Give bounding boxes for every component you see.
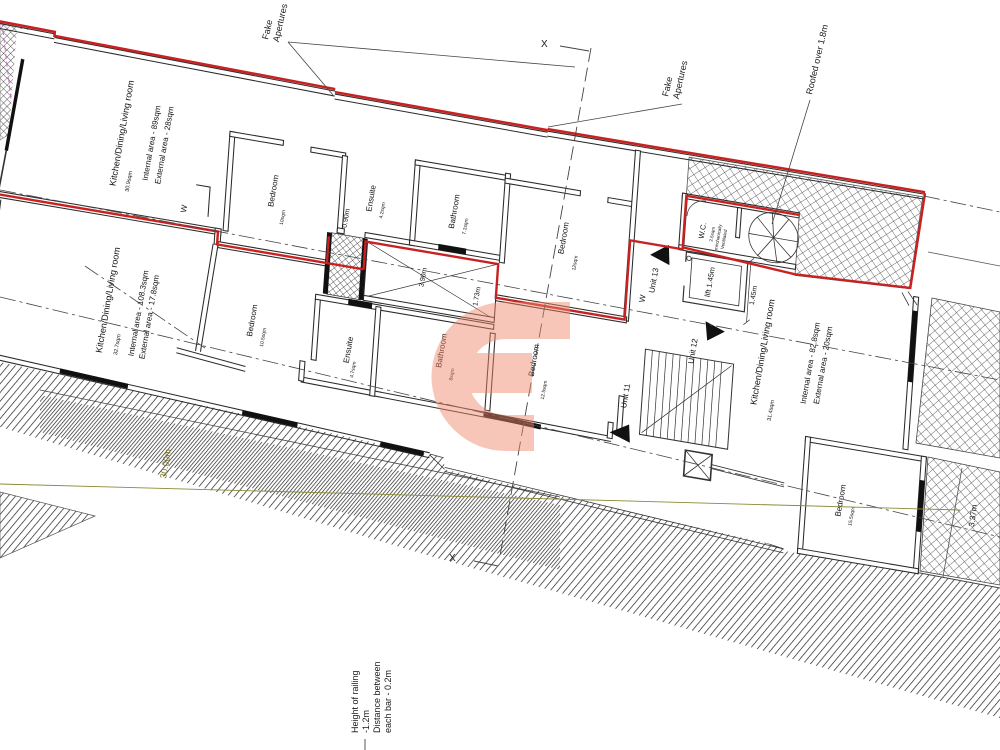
svg-text:X: X [449, 553, 456, 564]
svg-text:Height of railing -1.2m Di: Height of railing -1.2m Distance between… [350, 659, 393, 733]
svg-text:X: X [541, 39, 548, 50]
